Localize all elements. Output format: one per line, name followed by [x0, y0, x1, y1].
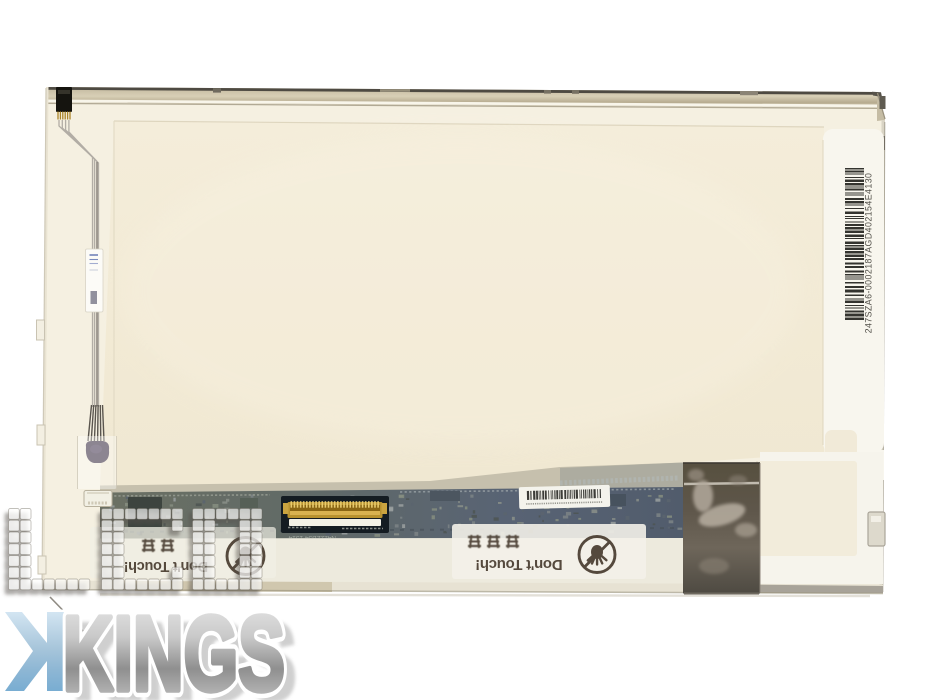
svg-text:KINGS: KINGS — [63, 596, 285, 700]
svg-text:Don't Touch!: Don't Touch! — [475, 556, 562, 573]
svg-text:247SZA6-0002187AGD402154E4130: 247SZA6-0002187AGD402154E4130 — [864, 173, 874, 334]
